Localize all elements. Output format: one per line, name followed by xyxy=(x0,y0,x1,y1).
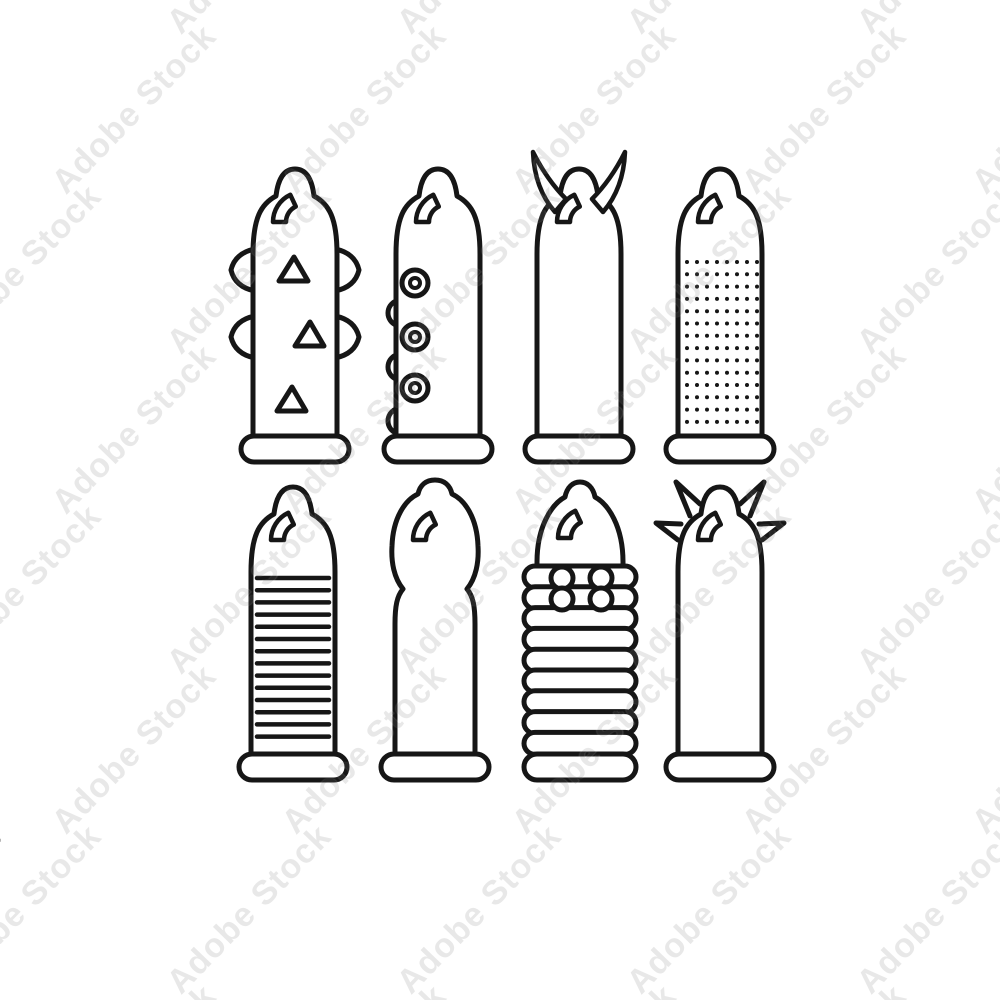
condom-dotted-icon xyxy=(650,148,790,468)
ring-stack xyxy=(524,566,636,754)
condom-beaded-rings-icon xyxy=(510,466,650,786)
condom-studded-triangles-icon xyxy=(225,148,365,468)
stock-image-canvas: Adobe StockAdobe StockAdobe StockAdobe S… xyxy=(0,0,1000,1000)
condom-unrolled-open-icon xyxy=(509,148,649,468)
condom-icon-set xyxy=(0,0,1000,1000)
condom-spiked-tip-icon xyxy=(650,466,790,786)
stock-attribution: Adobe Stock | #112226667 xyxy=(0,698,2,997)
condom-contoured-icon xyxy=(365,466,505,786)
condom-ribbed-icon xyxy=(223,466,363,786)
condom-ring-dots-icon xyxy=(368,148,508,468)
